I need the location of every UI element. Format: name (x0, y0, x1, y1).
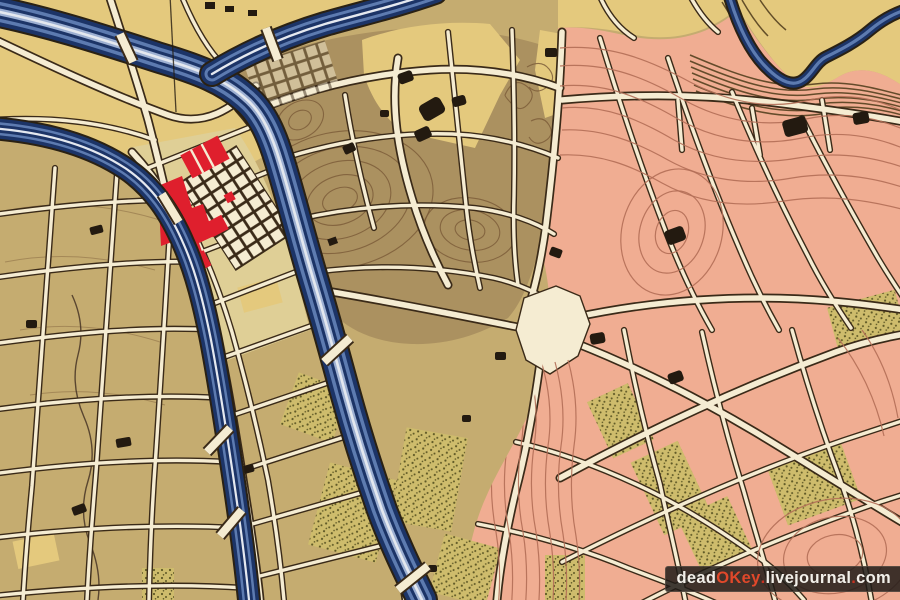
watermark: deadOKey.livejournal.com (665, 566, 900, 592)
map-image[interactable]: deadOKey.livejournal.com (0, 0, 900, 600)
watermark-text: livejournal (765, 569, 851, 587)
watermark-text: OKey (716, 569, 760, 587)
map-canvas (0, 0, 900, 600)
watermark-text: com (856, 569, 891, 587)
watermark-text: dead (677, 569, 717, 587)
